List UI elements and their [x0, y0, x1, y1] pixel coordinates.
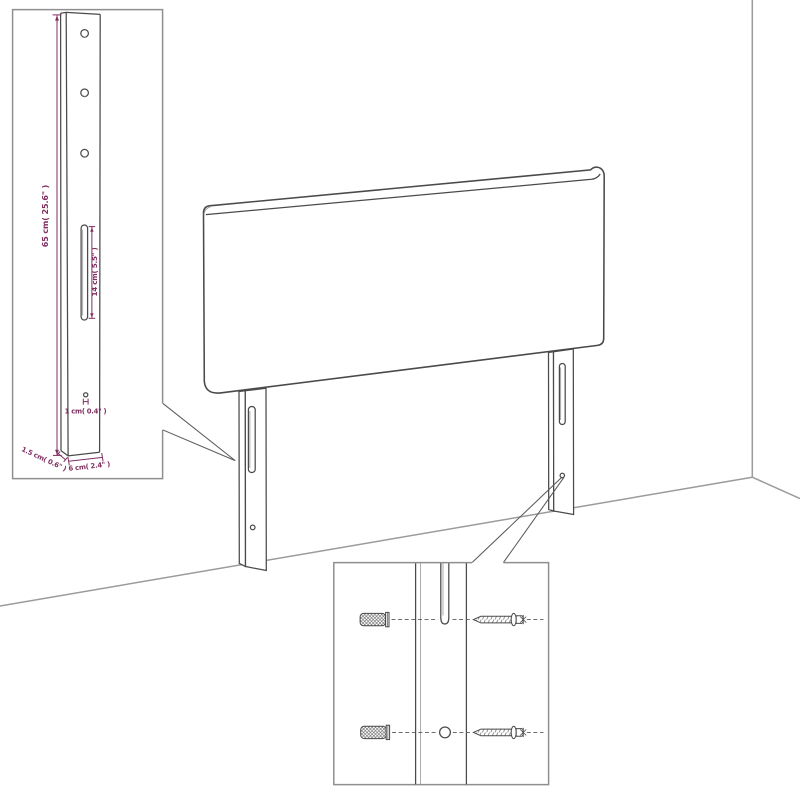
inset-mounting-detail: [334, 563, 549, 785]
post-callout-leader-top: [163, 403, 236, 460]
dimension-label-hole: 1 cm( 0.4" ): [65, 408, 107, 416]
mounting-callout-leader-right: [503, 478, 563, 563]
leg-screw-hole: [560, 473, 564, 477]
post-slot: [81, 225, 88, 320]
post-hole-top: [81, 30, 89, 38]
floor-line-right: [752, 477, 800, 498]
wall-plug-icon: [361, 725, 390, 739]
leg-slot: [248, 407, 255, 473]
post-callout-leader-bottom: [163, 430, 236, 461]
panel-outline: [203, 167, 604, 393]
headboard-leg-left: [239, 388, 266, 570]
inset-post-detail: 65 cm( 25.6" ) 14 cm( 5.5" ) 1 cm( 0.4" …: [13, 10, 163, 479]
leg-side-face: [239, 391, 246, 567]
post-hole-middle: [81, 89, 89, 97]
headboard-leg-right: [549, 349, 574, 515]
leg-screw-hole: [250, 525, 255, 530]
headboard-diagram: 65 cm( 25.6" ) 14 cm( 5.5" ) 1 cm( 0.4" …: [0, 0, 800, 800]
post-front-right-edge: [100, 14, 101, 452]
post-hole-bottom: [81, 149, 89, 157]
leg-slot: [559, 364, 565, 425]
callout-leader-lines: [163, 403, 564, 562]
mounting-callout-leader-left: [472, 478, 561, 563]
dimension-label-height: 65 cm( 25.6" ): [41, 185, 50, 247]
leg-closeup-screw-hole: [440, 727, 451, 738]
headboard-diagram-page: 65 cm( 25.6" ) 14 cm( 5.5" ) 1 cm( 0.4" …: [0, 0, 800, 800]
post-small-hole: [84, 393, 88, 397]
dimension-label-slot: 14 cm( 5.5" ): [90, 247, 99, 296]
headboard-panel: [203, 167, 604, 393]
wall-plug-icon: [360, 612, 389, 626]
